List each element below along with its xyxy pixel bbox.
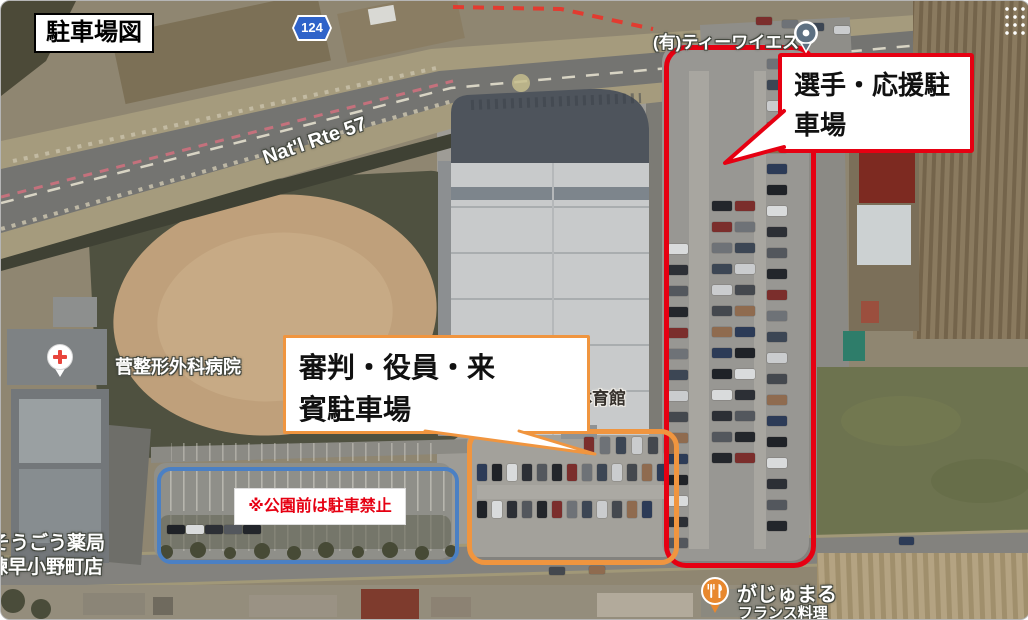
hospital-label: 菅整形外科病院: [115, 353, 241, 379]
parked-car: [834, 26, 850, 34]
players-parking-callout: 選手・応援駐 車場: [778, 53, 974, 153]
parked-car: [756, 17, 772, 25]
players-callout-line2: 車場: [794, 105, 970, 145]
route-shield-number: 124: [294, 17, 330, 39]
parked-car: [549, 567, 565, 575]
players-callout-line1: 選手・応援駐: [794, 65, 970, 105]
officials-callout-line1: 審判・役員・来: [299, 347, 587, 389]
page-title: 駐車場図: [34, 13, 154, 53]
business-pin-icon: [791, 19, 821, 55]
players-callout-tail: [701, 101, 796, 173]
route-124-shield: 124: [292, 15, 332, 41]
no-parking-note: ※公園前は駐車禁止: [234, 488, 406, 525]
officials-callout-line2: 賓駐車場: [299, 389, 587, 431]
pharmacy-label-line1: そうごう薬局: [0, 528, 105, 555]
business-label: (有)ティーワイエス: [653, 28, 799, 53]
officials-callout-tail: [413, 428, 608, 462]
restaurant-genre-label: フランス料理: [738, 602, 828, 620]
parked-car: [589, 566, 605, 574]
officials-parking-callout: 審判・役員・来 賓駐車場: [283, 335, 590, 434]
parking-map-screenshot: 選手・応援駐 車場 審判・役員・来 賓駐車場 駐車場図 ※公園前は駐車禁止 12…: [0, 0, 1028, 620]
parked-car: [899, 537, 914, 545]
pharmacy-label-line2: 諫早小野町店: [0, 552, 103, 579]
hospital-pin-icon: [45, 343, 75, 381]
restaurant-pin-icon: [698, 575, 732, 617]
